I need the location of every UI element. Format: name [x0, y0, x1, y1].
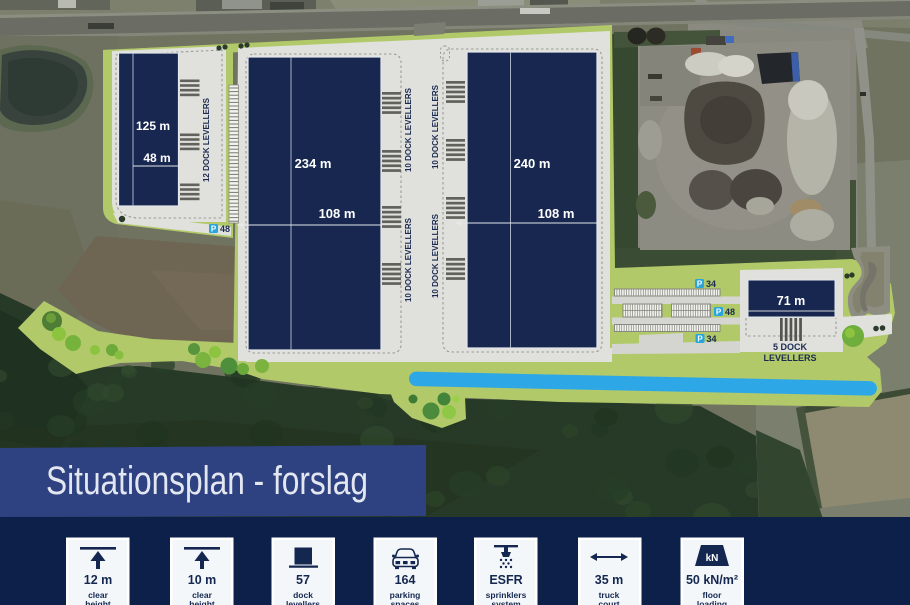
svg-text:57: 57: [296, 573, 310, 587]
svg-text:10 DOCK LEVELLERS: 10 DOCK LEVELLERS: [431, 84, 440, 169]
svg-text:108 m: 108 m: [319, 206, 356, 221]
svg-text:164: 164: [395, 573, 416, 587]
svg-text:P: P: [716, 308, 722, 317]
svg-text:48 m: 48 m: [143, 151, 170, 165]
svg-text:108 m: 108 m: [538, 206, 575, 221]
svg-text:spaces: spaces: [391, 599, 420, 605]
svg-text:kN: kN: [706, 553, 719, 564]
svg-text:48: 48: [725, 307, 735, 317]
svg-text:35 m: 35 m: [595, 573, 624, 587]
svg-text:court: court: [598, 599, 619, 605]
svg-text:system: system: [491, 599, 521, 605]
svg-text:LEVELLERS: LEVELLERS: [763, 353, 816, 363]
svg-text:10 m: 10 m: [188, 573, 217, 587]
svg-text:P: P: [211, 225, 217, 234]
svg-text:50 kN/m²: 50 kN/m²: [686, 573, 738, 587]
svg-text:height: height: [189, 599, 215, 605]
svg-text:240 m: 240 m: [514, 156, 551, 171]
svg-text:71 m: 71 m: [777, 294, 806, 308]
svg-text:Situationsplan - forslag: Situationsplan - forslag: [46, 459, 368, 503]
svg-text:10 DOCK LEVELLERS: 10 DOCK LEVELLERS: [404, 217, 413, 302]
svg-text:12 m: 12 m: [84, 573, 113, 587]
svg-text:5 DOCK: 5 DOCK: [773, 342, 808, 352]
svg-text:10 DOCK LEVELLERS: 10 DOCK LEVELLERS: [404, 87, 413, 172]
svg-text:125 m: 125 m: [136, 119, 170, 133]
svg-text:P: P: [697, 335, 703, 344]
svg-text:48: 48: [220, 224, 230, 234]
svg-text:34: 34: [706, 279, 716, 289]
svg-text:levellers: levellers: [286, 599, 320, 605]
svg-text:234 m: 234 m: [295, 156, 332, 171]
svg-text:12 DOCK LEVELLERS: 12 DOCK LEVELLERS: [202, 97, 211, 182]
svg-text:loading: loading: [697, 599, 727, 605]
svg-text:height: height: [85, 599, 111, 605]
svg-text:ESFR: ESFR: [489, 573, 522, 587]
svg-text:P: P: [697, 280, 703, 289]
svg-text:34: 34: [707, 334, 717, 344]
svg-text:10 DOCK LEVELLERS: 10 DOCK LEVELLERS: [431, 213, 440, 298]
